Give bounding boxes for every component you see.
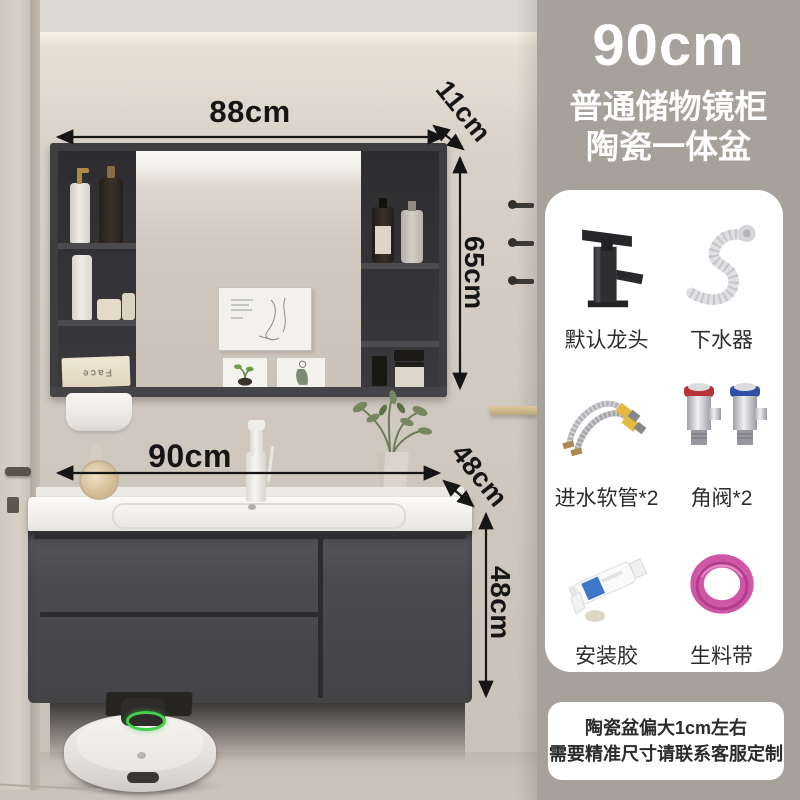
dim-vanity-width: 90cm (130, 440, 250, 472)
accessories-panel: 默认龙头 下水器 (545, 190, 783, 672)
dim-mirror-height: 65cm (460, 236, 488, 308)
accessory-thread-seal-tape: 生料带 (664, 520, 779, 678)
note-line2: 需要精准尺寸请联系客服定制 (549, 744, 783, 765)
dim-vanity-height: 48cm (486, 566, 514, 638)
glue-tube-icon (555, 520, 659, 644)
drain-hose-icon (676, 204, 768, 328)
subtitle-line2: 陶瓷一体盆 (537, 120, 800, 168)
accessory-label: 默认龙头 (565, 328, 649, 354)
accessory-inlet-hoses: 进水软管*2 (549, 362, 664, 520)
accessory-default-faucet: 默认龙头 (549, 204, 664, 362)
accessory-angle-valves: 角阀*2 (664, 362, 779, 520)
dim-mirror-width: 88cm (190, 96, 310, 127)
accessory-label: 进水软管*2 (555, 486, 659, 512)
tape-ring-icon (676, 520, 768, 644)
product-image: Face (0, 0, 800, 800)
accessory-mounting-glue: 安装胶 (549, 520, 664, 678)
note-line1: 陶瓷盆偏大1cm左右 (585, 718, 747, 739)
accessory-label: 角阀*2 (691, 486, 753, 512)
accessory-drain-kit: 下水器 (664, 204, 779, 362)
accessory-label: 安装胶 (575, 644, 638, 670)
note-card: 陶瓷盆偏大1cm左右 需要精准尺寸请联系客服定制 (548, 702, 784, 780)
accessory-label: 下水器 (690, 328, 753, 354)
accessories-grid: 默认龙头 下水器 (545, 190, 783, 678)
faucet-icon (561, 204, 653, 328)
inlet-hoses-icon (555, 362, 659, 486)
size-title: 90cm (537, 12, 800, 79)
angle-valves-icon (670, 362, 774, 486)
accessory-label: 生料带 (690, 644, 753, 670)
